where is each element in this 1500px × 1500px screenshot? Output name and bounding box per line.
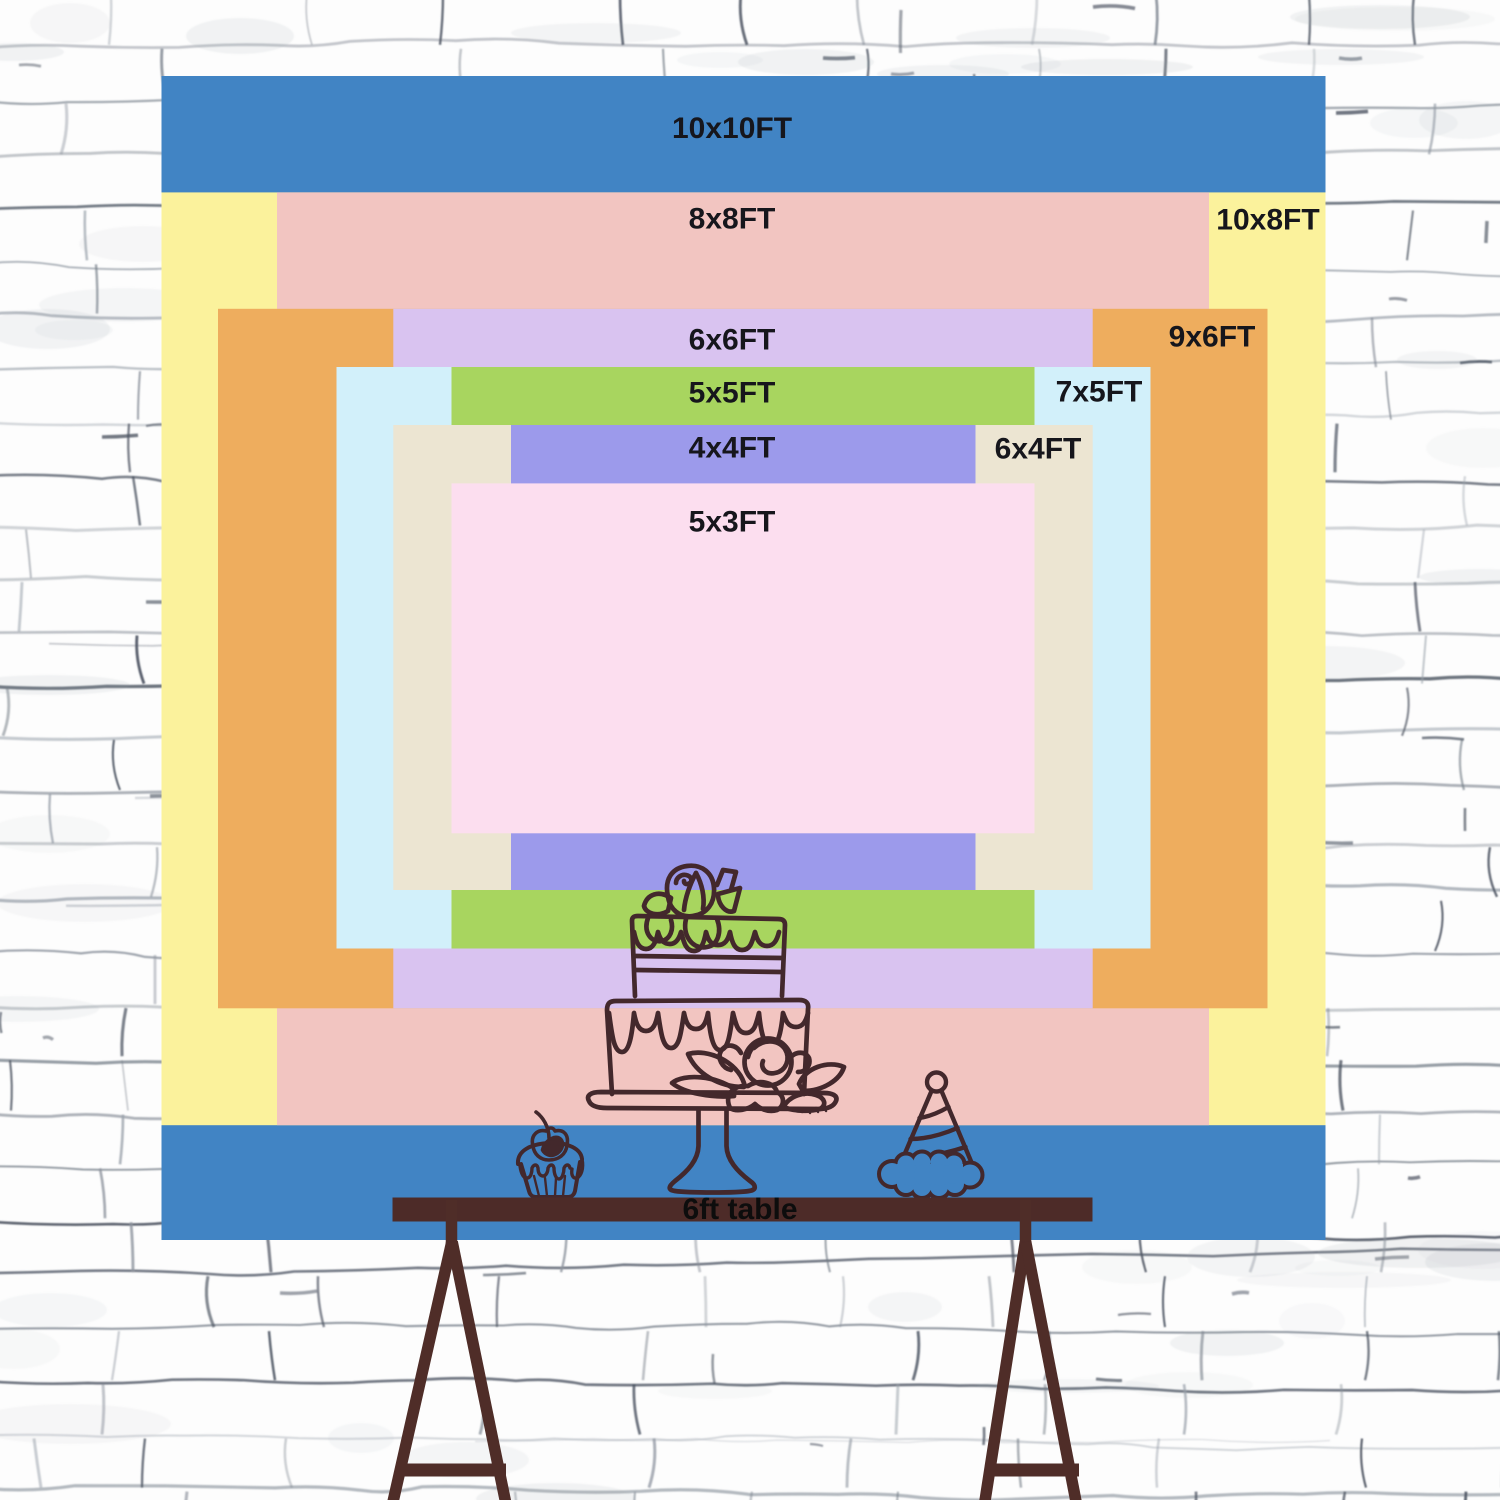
- svg-text:10x8FT: 10x8FT: [1216, 204, 1319, 237]
- svg-text:4x4FT: 4x4FT: [689, 432, 776, 465]
- svg-text:5x3FT: 5x3FT: [689, 506, 776, 539]
- svg-text:10x10FT: 10x10FT: [672, 112, 792, 145]
- svg-text:5x5FT: 5x5FT: [689, 377, 776, 410]
- svg-text:7x5FT: 7x5FT: [1056, 376, 1143, 409]
- svg-text:6ft table: 6ft table: [682, 1193, 797, 1226]
- svg-text:9x6FT: 9x6FT: [1169, 321, 1256, 354]
- svg-text:8x8FT: 8x8FT: [689, 203, 776, 236]
- svg-text:6x6FT: 6x6FT: [689, 324, 776, 357]
- svg-text:6x4FT: 6x4FT: [995, 433, 1082, 466]
